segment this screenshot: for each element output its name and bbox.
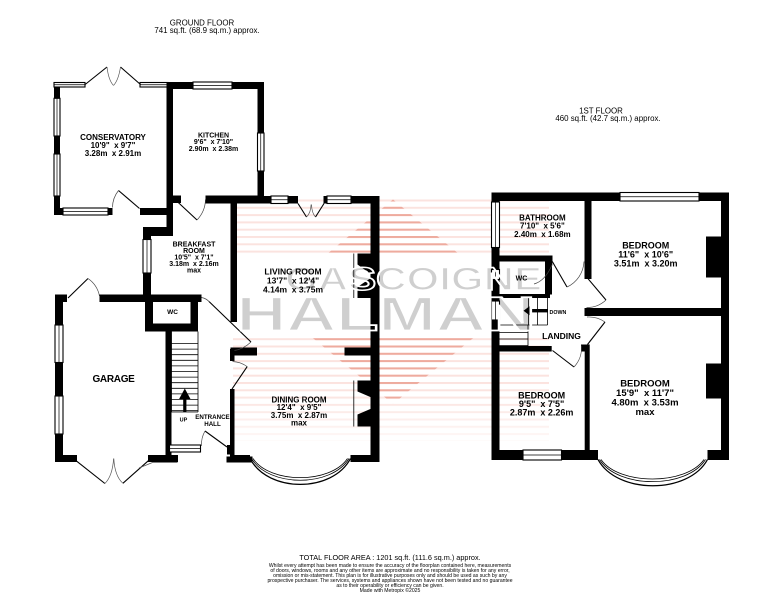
svg-text:2.90m x 2.38m: 2.90m x 2.38m — [189, 146, 238, 153]
svg-text:UP: UP — [180, 418, 188, 424]
svg-text:2.40m x 1.68m: 2.40m x 1.68m — [514, 230, 570, 239]
svg-text:HALMAN: HALMAN — [237, 288, 536, 341]
svg-text:LANDING: LANDING — [542, 331, 581, 341]
svg-text:max: max — [635, 407, 655, 418]
svg-text:4.14m x 3.75m: 4.14m x 3.75m — [263, 284, 323, 294]
svg-text:DOWN: DOWN — [550, 310, 567, 316]
svg-text:WC: WC — [167, 309, 178, 316]
svg-text:Made with Metropix ©2025: Made with Metropix ©2025 — [360, 587, 421, 594]
svg-text:3.28m x 2.91m: 3.28m x 2.91m — [85, 149, 141, 158]
svg-text:741 sq.ft. (68.9 sq.m.) approx: 741 sq.ft. (68.9 sq.m.) approx. — [154, 26, 259, 35]
svg-text:460 sq.ft. (42.7 sq.m.) approx: 460 sq.ft. (42.7 sq.m.) approx. — [555, 114, 660, 123]
svg-text:max: max — [291, 419, 308, 428]
svg-text:3.51m x 3.20m: 3.51m x 3.20m — [614, 259, 678, 269]
svg-text:2.87m x 2.26m: 2.87m x 2.26m — [510, 407, 574, 417]
svg-text:TOTAL FLOOR AREA : 1201 sq.ft.: TOTAL FLOOR AREA : 1201 sq.ft. (111.6 sq… — [299, 553, 480, 562]
svg-text:max: max — [187, 268, 201, 275]
svg-text:HALL: HALL — [204, 421, 221, 428]
svg-text:WC: WC — [516, 276, 528, 283]
svg-text:GARAGE: GARAGE — [92, 374, 135, 385]
